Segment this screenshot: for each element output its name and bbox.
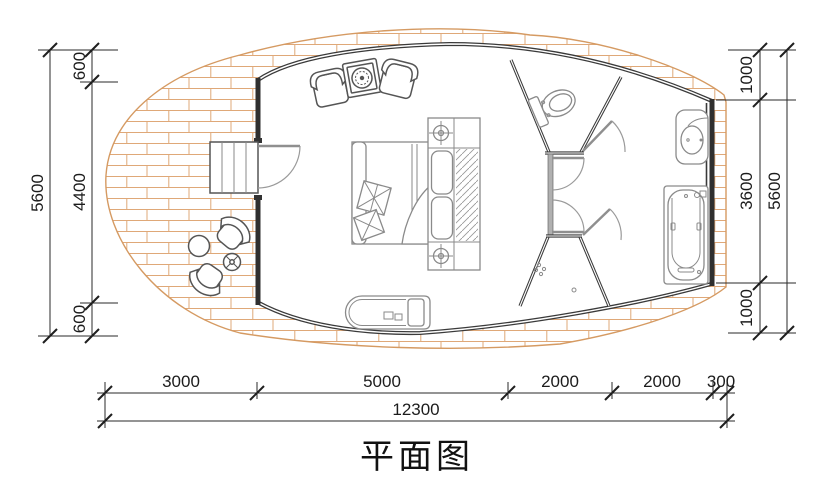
- chaise-lounge: [346, 296, 431, 329]
- dimension-right: 1000 3600 1000 5600: [716, 43, 796, 340]
- dim-label: 1000: [737, 289, 756, 327]
- dim-label: 600: [70, 305, 89, 333]
- floor-plan-canvas: 600 4400 600 5600 1000 3600 1000 5600: [0, 0, 837, 496]
- dim-label: 5600: [28, 174, 47, 212]
- bathtub: [664, 186, 708, 284]
- dim-label: 5000: [363, 372, 401, 391]
- fire-table: [342, 58, 381, 97]
- drawing-title: 平面图: [360, 438, 474, 476]
- entry-steps: [210, 142, 258, 193]
- dimension-left: 600 4400 600 5600: [28, 43, 118, 343]
- dim-label: 12300: [392, 400, 439, 419]
- wardrobe-hatch: [456, 149, 478, 241]
- dim-label: 300: [707, 372, 735, 391]
- dim-label: 4400: [70, 173, 89, 211]
- dim-label: 3000: [162, 372, 200, 391]
- dim-label: 1000: [737, 56, 756, 94]
- dim-label: 600: [70, 52, 89, 80]
- dim-label: 3600: [737, 172, 756, 210]
- dim-label: 2000: [541, 372, 579, 391]
- round-table: [189, 236, 210, 257]
- head-pillow: [432, 151, 453, 194]
- entry-door-jamb-bottom: [254, 195, 262, 200]
- dimension-bottom: 3000 5000 2000 2000 300 12300: [97, 372, 735, 428]
- dim-label: 5600: [765, 172, 784, 210]
- side-table: [224, 254, 241, 271]
- bed: [352, 142, 430, 244]
- wash-basin: [676, 110, 708, 164]
- head-pillow: [432, 197, 453, 239]
- floor-plan-page: 600 4400 600 5600 1000 3600 1000 5600: [0, 0, 837, 496]
- center-wall: [548, 154, 553, 236]
- dim-label: 2000: [643, 372, 681, 391]
- headboard-unit: [428, 118, 480, 270]
